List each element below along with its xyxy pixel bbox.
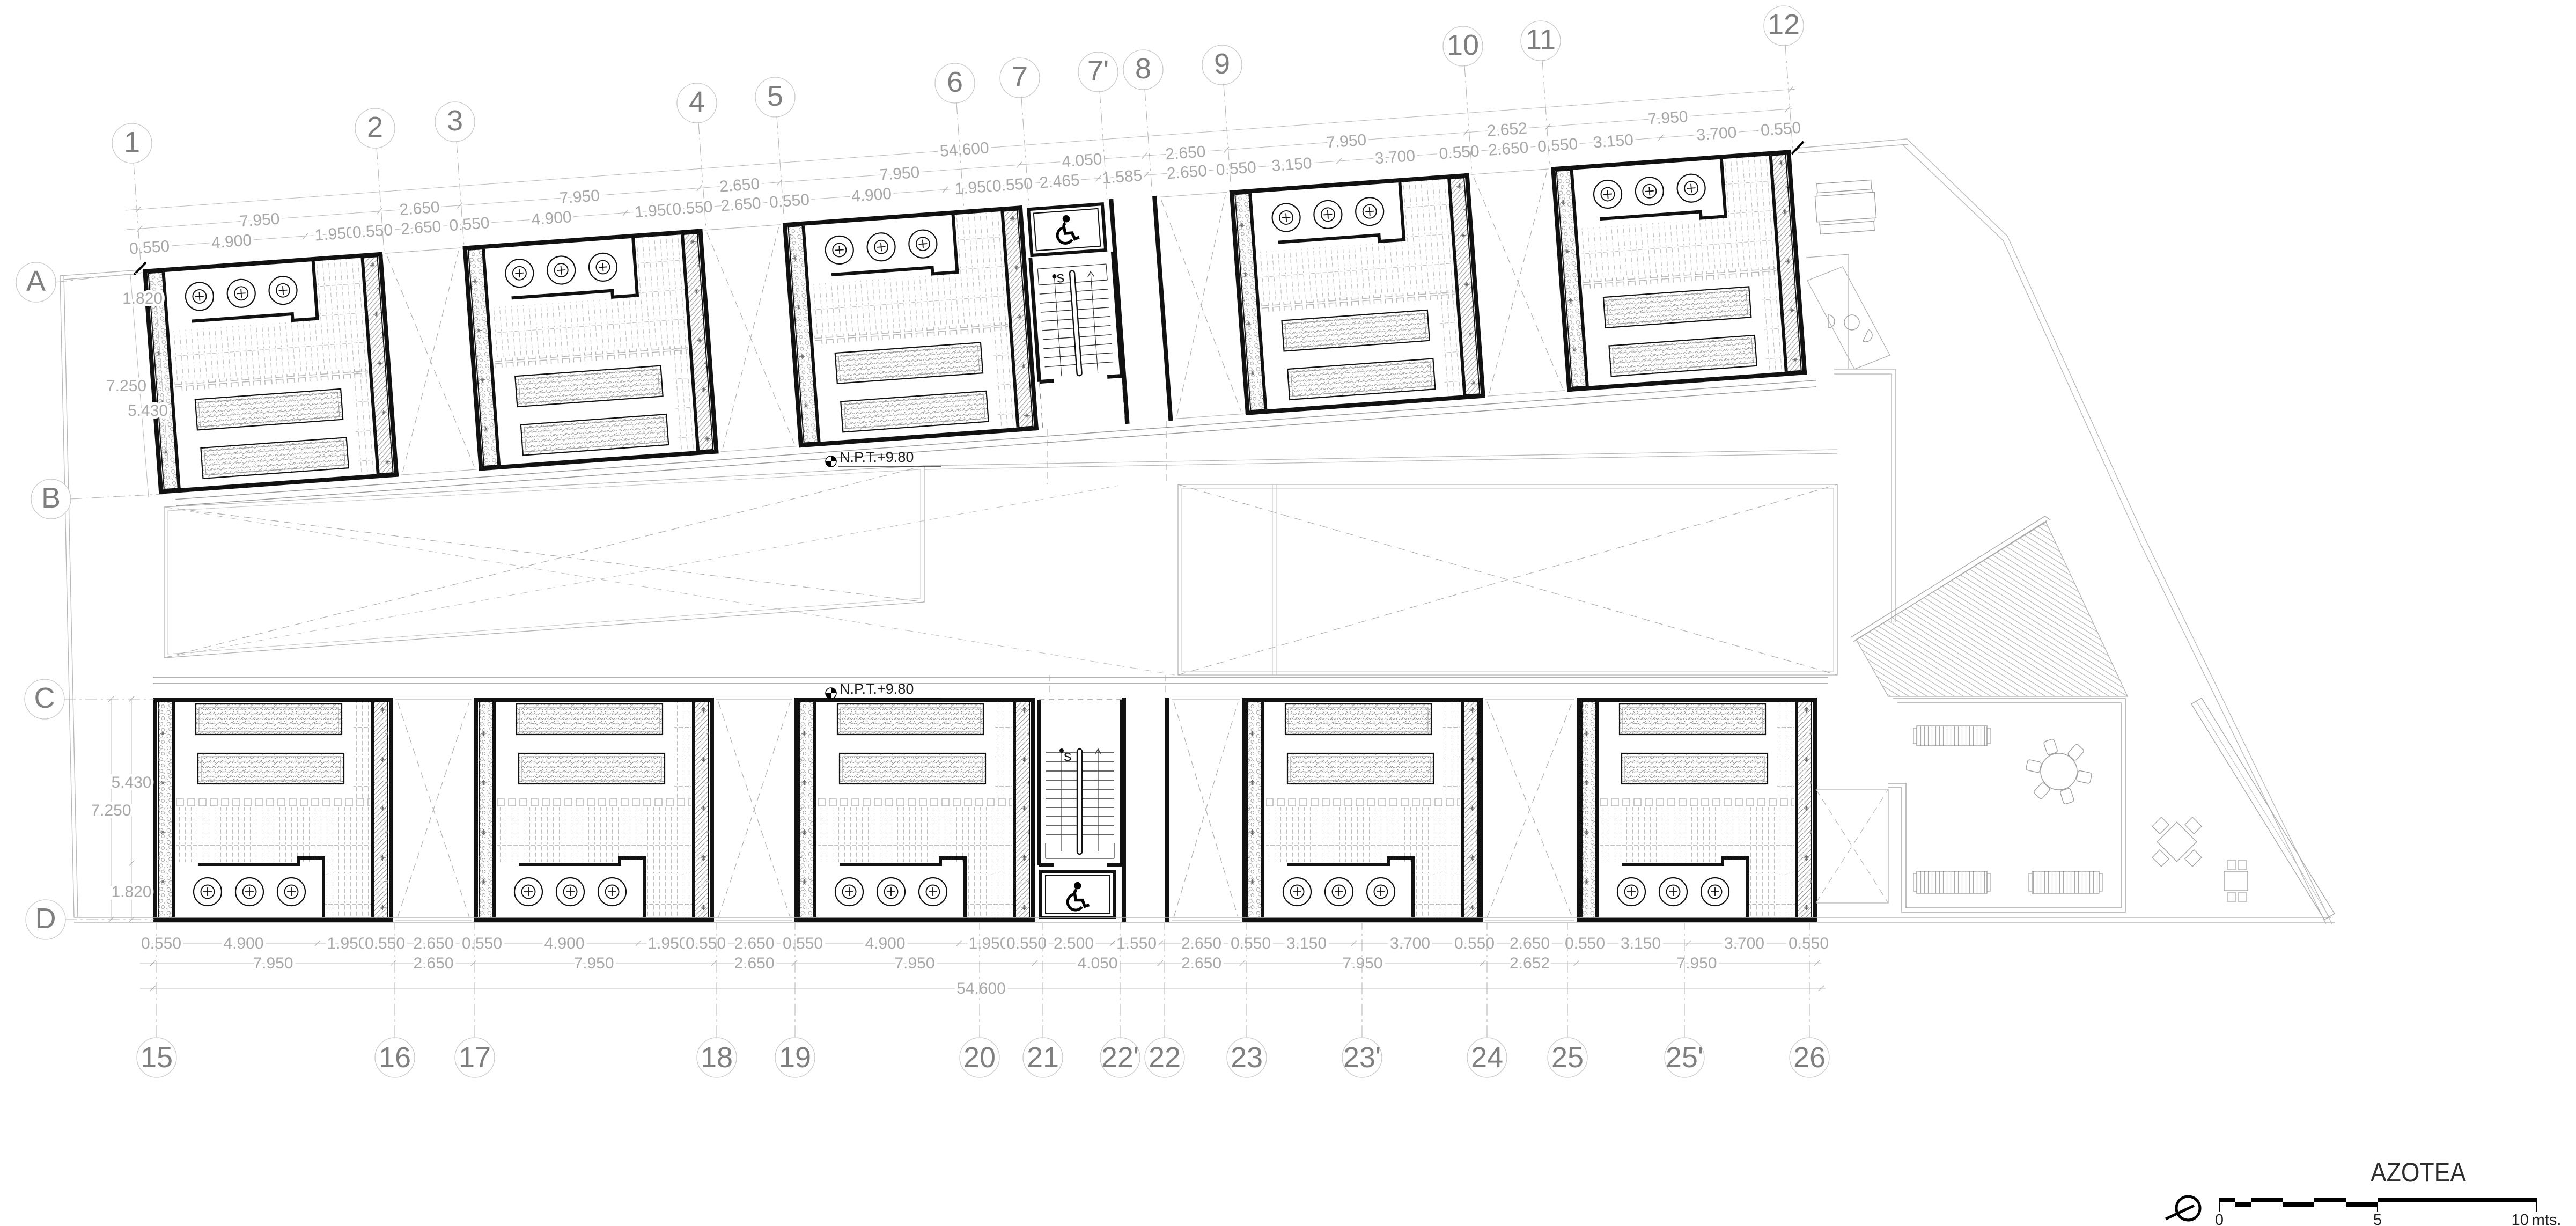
svg-text:0.550: 0.550 [141,935,181,952]
svg-text:0.550: 0.550 [1789,935,1829,952]
svg-text:3.700: 3.700 [1724,935,1764,952]
svg-text:AZOTEA: AZOTEA [2371,1157,2467,1187]
svg-text:N.P.T.+9.80: N.P.T.+9.80 [840,681,914,697]
svg-text:7': 7' [1087,55,1109,87]
svg-text:16: 16 [379,1041,411,1074]
svg-text:7.950: 7.950 [1647,108,1688,128]
svg-text:5.430: 5.430 [128,402,168,420]
svg-text:15: 15 [141,1041,173,1074]
svg-text:24: 24 [1471,1041,1503,1074]
svg-text:7: 7 [1012,61,1028,93]
svg-text:3.700: 3.700 [1696,123,1737,144]
svg-text:22: 22 [1149,1041,1181,1074]
svg-text:0.550: 0.550 [1231,935,1271,952]
svg-text:4.900: 4.900 [851,185,892,205]
svg-text:4: 4 [689,86,705,118]
svg-text:7.250: 7.250 [91,802,131,819]
svg-text:2.650: 2.650 [719,175,760,195]
svg-text:0: 0 [2215,1212,2224,1226]
svg-text:22': 22' [1101,1041,1139,1074]
svg-text:7.950: 7.950 [1326,131,1367,151]
svg-text:1.950: 1.950 [314,224,356,244]
svg-text:A: A [26,265,46,297]
svg-text:6: 6 [947,66,963,98]
svg-text:0.550: 0.550 [129,237,170,258]
svg-text:2.650: 2.650 [399,199,440,219]
svg-text:7.950: 7.950 [573,955,614,972]
svg-text:10 mts.: 10 mts. [2512,1212,2562,1226]
svg-text:25: 25 [1551,1041,1584,1074]
svg-text:0.550: 0.550 [1760,119,1801,140]
svg-text:3.700: 3.700 [1390,935,1430,952]
svg-text:2.465: 2.465 [1039,171,1080,192]
svg-text:C: C [34,682,55,714]
svg-text:7.250: 7.250 [106,377,146,395]
svg-text:7.950: 7.950 [894,955,934,972]
svg-text:2.650: 2.650 [1166,162,1208,182]
svg-text:0.550: 0.550 [1565,935,1605,952]
svg-text:7.950: 7.950 [1342,955,1382,972]
svg-text:1.950: 1.950 [954,178,995,198]
svg-text:12: 12 [1768,9,1800,41]
svg-text:2.650: 2.650 [1165,143,1206,163]
svg-text:5: 5 [767,80,783,112]
svg-text:0.550: 0.550 [783,935,823,952]
svg-text:0.550: 0.550 [1439,142,1480,163]
svg-text:7.950: 7.950 [879,164,920,184]
svg-text:2.500: 2.500 [1054,935,1094,952]
svg-text:B: B [41,482,61,514]
svg-text:1.820: 1.820 [111,883,151,901]
svg-text:2.650: 2.650 [1181,955,1221,972]
svg-text:1.950: 1.950 [634,201,675,221]
svg-text:54.600: 54.600 [939,139,990,160]
svg-text:7.950: 7.950 [1676,955,1717,972]
svg-text:23': 23' [1343,1041,1381,1074]
svg-text:5: 5 [2373,1212,2382,1226]
svg-text:2.650: 2.650 [413,955,453,972]
svg-text:0.550: 0.550 [1216,158,1257,179]
svg-text:4.900: 4.900 [223,935,263,952]
svg-text:2.652: 2.652 [1510,955,1550,972]
svg-text:3.150: 3.150 [1286,935,1327,952]
svg-text:26: 26 [1793,1041,1826,1074]
svg-text:20: 20 [963,1041,996,1074]
svg-text:3.150: 3.150 [1593,131,1634,151]
svg-text:0.550: 0.550 [1454,935,1495,952]
svg-text:0.550: 0.550 [672,198,713,218]
svg-text:18: 18 [701,1041,733,1074]
svg-text:8: 8 [1135,53,1151,85]
svg-text:4.050: 4.050 [1061,150,1102,171]
svg-text:1.950: 1.950 [327,935,367,952]
svg-text:2.650: 2.650 [1510,935,1550,952]
svg-text:2: 2 [367,111,383,143]
svg-text:3.150: 3.150 [1271,155,1312,175]
svg-text:3.150: 3.150 [1621,935,1661,952]
svg-text:23: 23 [1231,1041,1263,1074]
svg-text:0.550: 0.550 [448,214,490,234]
svg-text:N.P.T.+9.80: N.P.T.+9.80 [840,449,914,465]
svg-text:9: 9 [1214,48,1230,80]
svg-text:4.900: 4.900 [531,208,572,229]
svg-text:1.820: 1.820 [122,290,163,307]
svg-text:0.550: 0.550 [352,221,393,241]
svg-text:54.600: 54.600 [956,980,1006,997]
svg-text:2.650: 2.650 [1488,138,1529,159]
svg-text:3: 3 [447,105,463,137]
svg-text:2.650: 2.650 [720,194,762,215]
svg-text:2.650: 2.650 [413,935,453,952]
svg-text:19: 19 [779,1041,811,1074]
svg-text:17: 17 [459,1041,491,1074]
svg-text:0.550: 0.550 [365,935,405,952]
svg-text:4.050: 4.050 [1077,955,1117,972]
svg-text:2.650: 2.650 [734,935,774,952]
svg-text:0.550: 0.550 [462,935,502,952]
svg-text:5.430: 5.430 [111,774,151,791]
svg-text:1.950: 1.950 [968,935,1009,952]
svg-text:s: s [1064,747,1072,765]
svg-text:D: D [35,902,56,935]
svg-text:0.550: 0.550 [1537,135,1578,156]
svg-text:4.900: 4.900 [211,231,252,252]
svg-text:1.585: 1.585 [1101,167,1143,187]
svg-text:0.550: 0.550 [686,935,726,952]
svg-text:7.950: 7.950 [253,955,293,972]
svg-text:10: 10 [1447,29,1479,61]
svg-text:1.550: 1.550 [1116,935,1157,952]
svg-text:21: 21 [1027,1041,1059,1074]
svg-text:0.550: 0.550 [769,191,810,211]
svg-text:11: 11 [1526,24,1556,56]
svg-text:2.650: 2.650 [734,955,774,972]
svg-text:2.650: 2.650 [400,218,441,238]
svg-text:2.650: 2.650 [1181,935,1221,952]
svg-text:4.900: 4.900 [544,935,584,952]
svg-text:1.950: 1.950 [647,935,688,952]
svg-text:25': 25' [1666,1041,1703,1074]
svg-text:2.652: 2.652 [1486,120,1528,140]
svg-text:0.550: 0.550 [1006,935,1047,952]
svg-text:7.950: 7.950 [239,210,280,230]
svg-text:1: 1 [124,126,140,158]
svg-text:s: s [1056,269,1065,287]
svg-text:7.950: 7.950 [559,187,600,207]
svg-text:3.700: 3.700 [1374,147,1416,167]
svg-text:4.900: 4.900 [865,935,905,952]
